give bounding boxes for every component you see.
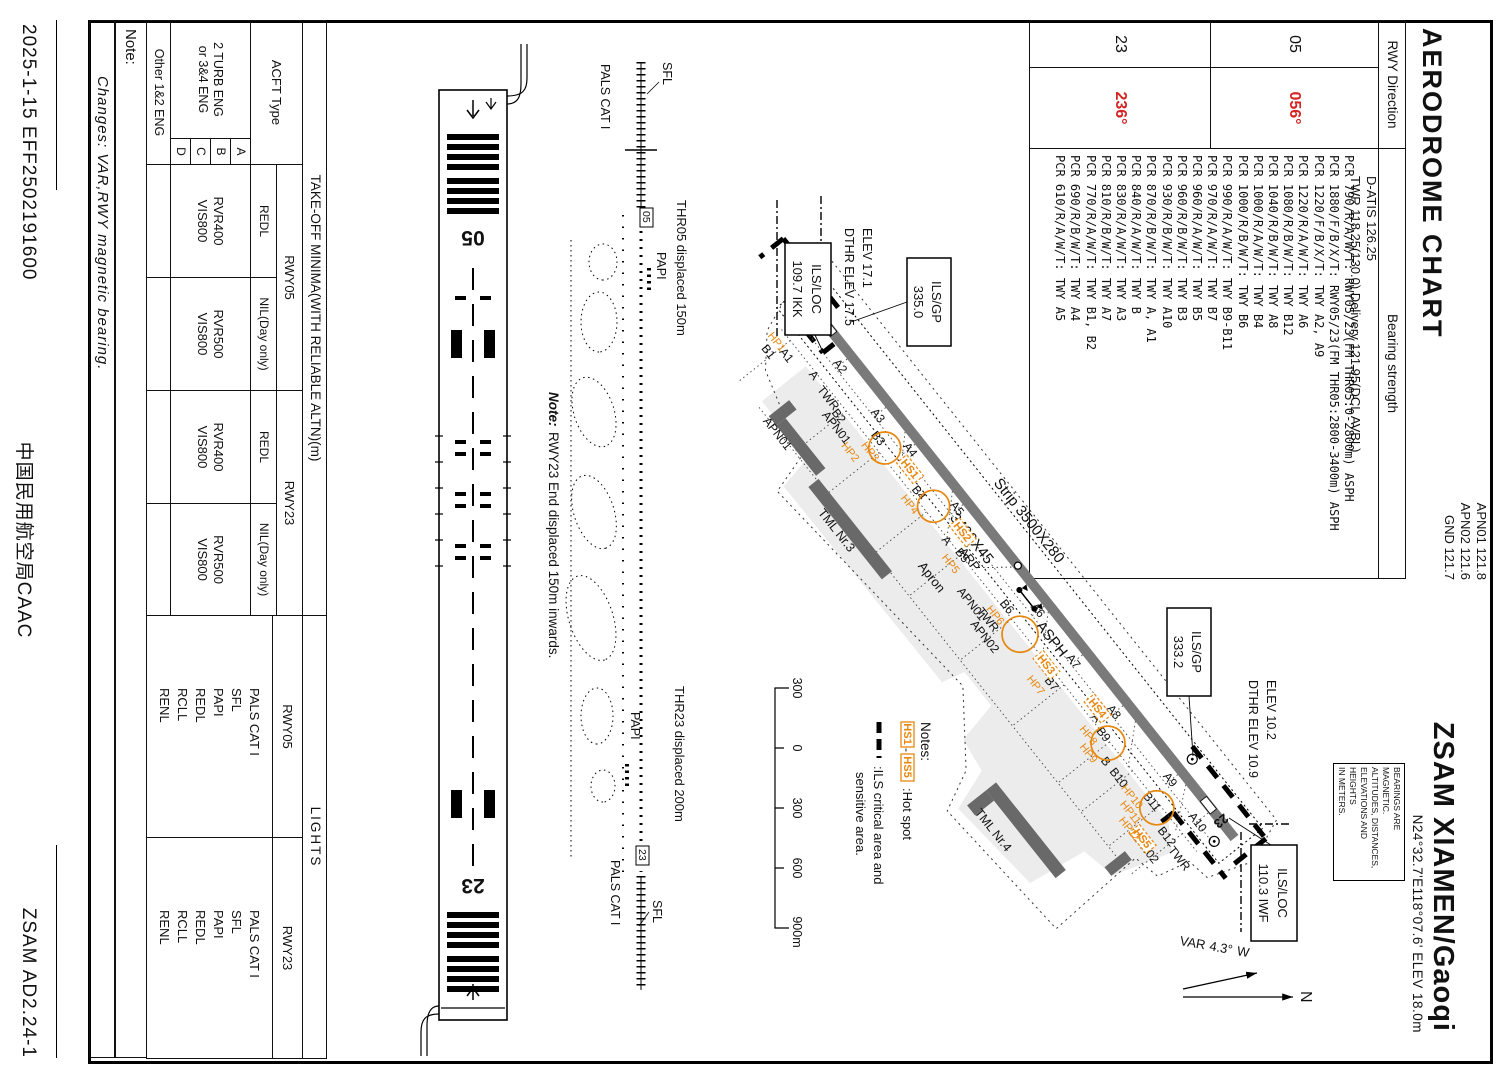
runway-plan-bar: 05 xyxy=(421,44,527,1056)
svg-text::Hot spot: :Hot spot xyxy=(900,788,915,840)
pals-05-label: PALS CAT I xyxy=(598,64,612,129)
other-eng-label: Other 1&2 ENG xyxy=(147,21,171,165)
svg-text:Notes:: Notes: xyxy=(918,722,933,761)
lights-rwy05-values: PALS CAT I SFL PAPI REDL RCLL RENL xyxy=(147,616,273,838)
svg-text:333.2: 333.2 xyxy=(1171,636,1186,669)
margin-rule-left xyxy=(56,20,57,190)
other-nil23-empty xyxy=(147,504,171,616)
svg-text:A7: A7 xyxy=(1063,651,1083,671)
lights-rwy23-header: RWY23 xyxy=(273,838,303,1059)
cat-a: A xyxy=(231,139,251,165)
svg-text:ELEV 17.1: ELEV 17.1 xyxy=(860,228,874,288)
svg-text:ILS/LOC: ILS/LOC xyxy=(809,264,824,314)
svg-text:ELEV 10.2: ELEV 10.2 xyxy=(1264,680,1278,740)
minima-nil23-value: RVR500 VIS800 xyxy=(171,504,251,616)
minima-redl23-value: RVR400 VIS800 xyxy=(171,391,251,504)
svg-text::ILS critical area and: :ILS critical area and xyxy=(871,766,886,885)
plan-rwy23-number: 23 xyxy=(461,874,484,897)
sfl-05-label: SFL xyxy=(660,62,674,85)
svg-text:0: 0 xyxy=(790,745,804,752)
lights-note-text: RWY23 End displaced 150m inwards. xyxy=(546,432,561,658)
papi-05-label: PAPI xyxy=(654,252,668,280)
svg-text:A10: A10 xyxy=(1186,809,1210,835)
lights-title: LIGHTS xyxy=(303,616,327,1059)
note-row: Note: xyxy=(114,20,147,1058)
lighting-diagram: SFL PALS CAT I 05 PAPI THR05 displaced 1… xyxy=(546,62,689,990)
svg-text:300: 300 xyxy=(790,798,804,819)
svg-text:600: 600 xyxy=(790,858,804,879)
effective-date: 2025-1-15 EFF2502191600 xyxy=(17,24,39,280)
svg-text:110.3 IWF: 110.3 IWF xyxy=(1256,863,1271,922)
redl-header-23: REDL xyxy=(251,391,277,504)
var-value: 4.3° xyxy=(1208,938,1234,957)
thr23-displaced-note: THR23 displaced 200m xyxy=(672,686,687,822)
svg-text:900m: 900m xyxy=(790,916,804,947)
redl-header-05: REDL xyxy=(251,165,277,278)
aerodrome-chart-page: AERODROME CHART D-ATIS 126.25 TWR 118.25… xyxy=(0,0,1499,1080)
svg-text:sensitive area.: sensitive area. xyxy=(853,772,868,856)
svg-text:TWR: TWR xyxy=(1165,843,1193,873)
cat-d: D xyxy=(171,139,191,165)
sfl-23-label: SFL xyxy=(650,900,664,923)
elev-23-labels: ELEV 10.2 DTHR ELEV 10.9 xyxy=(1246,680,1278,778)
note-label: Note: xyxy=(122,21,139,65)
thr23-designator: 23 xyxy=(636,849,648,861)
var-suffix: W xyxy=(1236,943,1251,960)
nil-header-23: NIL(Day only) xyxy=(251,504,277,616)
map-notes-legend: Notes: HS1 - HS5 :Hot spot :ILS critical… xyxy=(853,722,933,885)
margin-rule-right xyxy=(56,845,57,1058)
minima-rwy05-header: RWY05 xyxy=(277,165,303,391)
var-prefix: VAR xyxy=(1179,933,1207,952)
cat-b: B xyxy=(211,139,231,165)
changes-row: Changes: VAR,RWY magnetic bearing. xyxy=(89,20,116,1058)
minima-title: TAKE-OFF MINIMA(WITH RELIABLE ALTN)(m) xyxy=(303,21,327,616)
minima-nil05-value: RVR500 VIS800 xyxy=(171,278,251,391)
ils-loc-05-box: ILS/LOC 109.7 IKK xyxy=(777,196,831,352)
ils-gp-23-box: ILS/GP 333.2 xyxy=(1167,608,1211,756)
document-ref: ZSAM AD2.24-1 xyxy=(17,858,39,1058)
svg-text:300: 300 xyxy=(790,678,804,699)
other-nil05-empty xyxy=(147,278,171,391)
acft-group-label: 2 TURB ENG or 3&4 ENG xyxy=(171,21,251,139)
svg-text:N: N xyxy=(1297,991,1314,1003)
cat-c: C xyxy=(191,139,211,165)
svg-text:HS5: HS5 xyxy=(901,756,913,777)
svg-text:DTHR ELEV 17.5: DTHR ELEV 17.5 xyxy=(842,228,856,326)
scale-bar: 300 0 300 600 900m xyxy=(775,678,804,948)
north-arrow: N VAR 4.3° W xyxy=(1179,933,1314,1003)
lights-rwy05-header: RWY05 xyxy=(273,616,303,838)
takeoff-minima-table: TAKE-OFF MINIMA(WITH RELIABLE ALTN)(m) A… xyxy=(146,20,327,616)
lights-table: LIGHTS RWY05 RWY23 PALS CAT I SFL PAPI R… xyxy=(146,615,327,1059)
authority: 中国民用航空局CAAC xyxy=(12,390,39,690)
thr05-displaced-note: THR05 displaced 150m xyxy=(674,200,689,336)
minima-redl05-value: RVR400 VIS800 xyxy=(171,165,251,278)
other-redl05-empty xyxy=(147,165,171,278)
changes-text: Changes: VAR,RWY magnetic bearing. xyxy=(94,21,111,370)
elev-05-labels: ELEV 17.1 DTHR ELEV 17.5 xyxy=(842,228,874,326)
svg-text:ILS/GP: ILS/GP xyxy=(1189,631,1204,673)
other-redl23-empty xyxy=(147,391,171,504)
svg-text:DTHR ELEV 10.9: DTHR ELEV 10.9 xyxy=(1246,680,1260,778)
thr05-designator: 05 xyxy=(640,211,652,223)
svg-text:ILS/GP: ILS/GP xyxy=(929,281,944,323)
svg-text:335.0: 335.0 xyxy=(911,286,926,319)
svg-text:HS1: HS1 xyxy=(901,723,913,744)
plan-rwy05-number: 05 xyxy=(461,226,485,249)
svg-text:ILS/LOC: ILS/LOC xyxy=(1275,868,1290,918)
svg-text:109.7 IKK: 109.7 IKK xyxy=(790,260,805,317)
acft-type-header: ACFT Type xyxy=(251,21,303,165)
lights-rwy23-values: PALS CAT I SFL PAPI REDL RCLL RENL xyxy=(147,838,273,1059)
pals-23-label: PALS CAT I xyxy=(608,860,622,925)
papi-23-label: PAPI xyxy=(628,712,642,740)
minima-rwy23-header: RWY23 xyxy=(277,391,303,616)
nil-header-05: NIL(Day only) xyxy=(251,278,277,391)
lights-note-label: Note: xyxy=(546,392,561,427)
svg-text:-: - xyxy=(900,748,914,752)
